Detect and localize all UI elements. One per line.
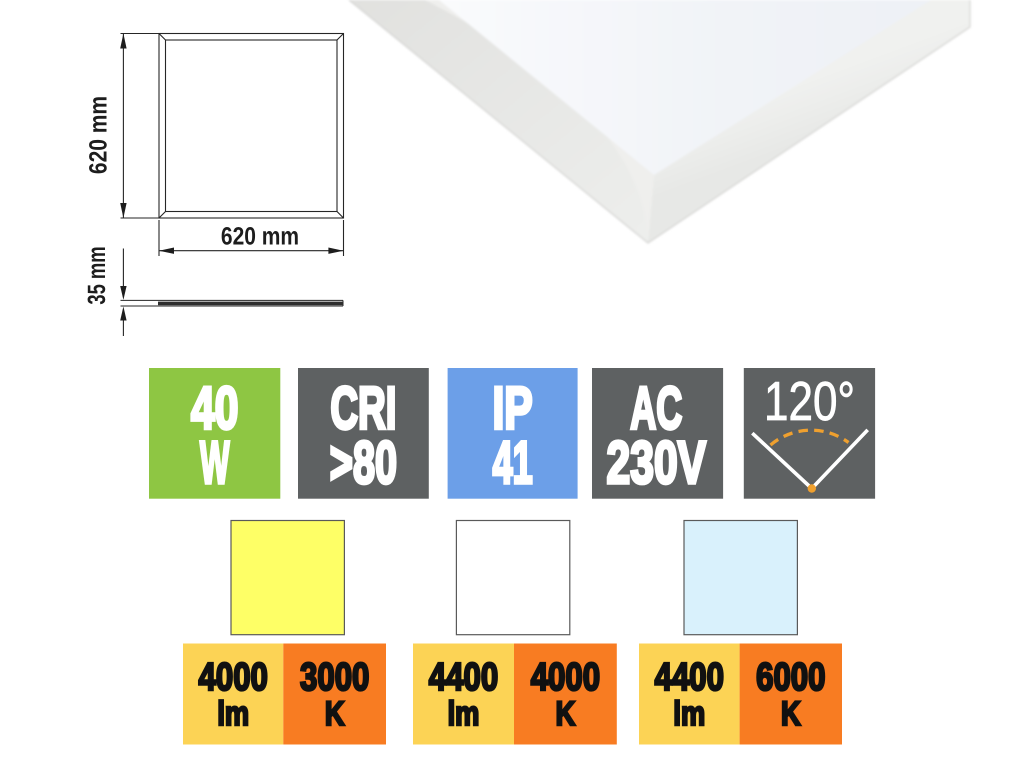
svg-text:4400: 4400	[429, 656, 498, 699]
svg-text:lm: lm	[448, 695, 480, 733]
svg-text:K: K	[556, 695, 576, 733]
svg-text:41: 41	[493, 429, 533, 496]
svg-text:6000: 6000	[756, 656, 825, 699]
svg-text:K: K	[781, 695, 801, 733]
svg-text:230V: 230V	[607, 429, 706, 496]
svg-text:K: K	[325, 695, 345, 733]
svg-text:620 mm: 620 mm	[221, 223, 299, 251]
svg-text:3000: 3000	[300, 656, 369, 699]
svg-text:lm: lm	[673, 695, 705, 733]
svg-text:620 mm: 620 mm	[85, 96, 113, 174]
svg-text:>80: >80	[330, 429, 397, 496]
svg-text:4000: 4000	[198, 656, 267, 699]
svg-text:4400: 4400	[655, 656, 724, 699]
svg-text:4000: 4000	[531, 656, 600, 699]
svg-text:W: W	[200, 429, 230, 496]
svg-text:35 mm: 35 mm	[83, 246, 111, 304]
svg-text:lm: lm	[217, 695, 249, 733]
svg-text:120°: 120°	[764, 370, 855, 432]
